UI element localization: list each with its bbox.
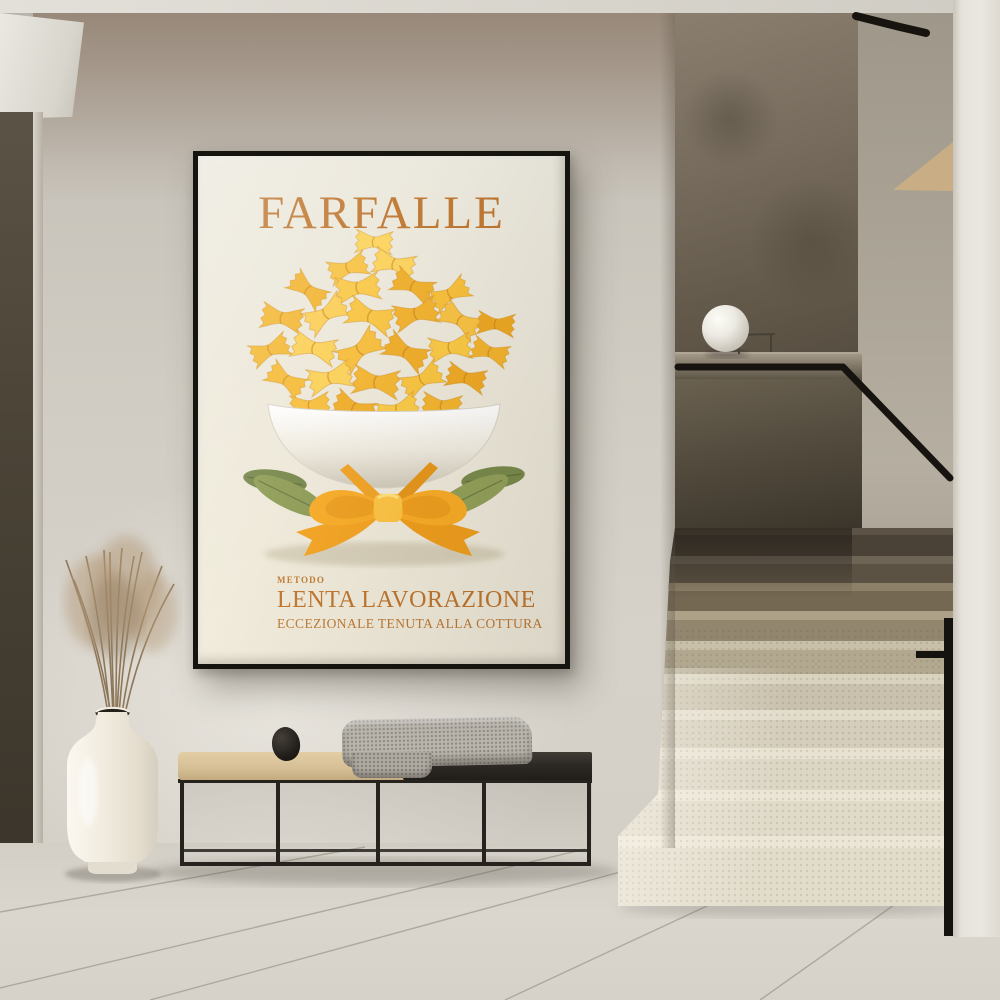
decor-layer <box>0 0 1000 1000</box>
lower-handrail <box>944 618 953 936</box>
grass-plumes <box>65 536 177 660</box>
interior-room-photo: FARFALLE <box>0 0 1000 1000</box>
sphere-lamp <box>702 305 775 358</box>
handrail-bracket <box>916 651 946 658</box>
ceramic-vase <box>67 708 158 875</box>
stair-stringer-wedge <box>893 142 953 191</box>
handrail <box>678 16 950 478</box>
